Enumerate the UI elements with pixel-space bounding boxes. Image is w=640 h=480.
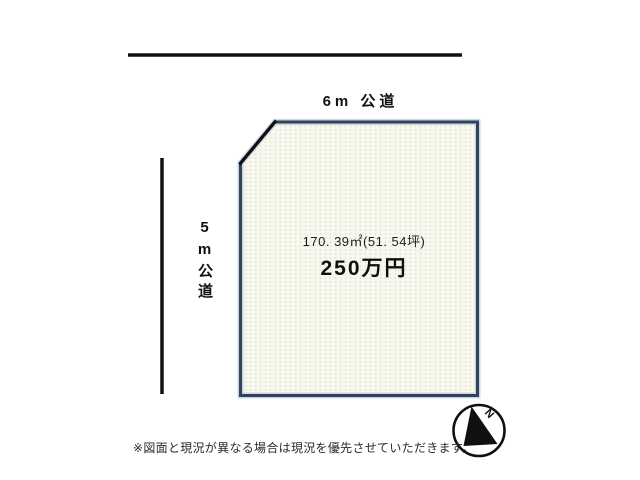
- land-plot-diagram: N 6m 公道 5m公道 170. 39㎡(51. 54坪) 250万円 ※図面…: [0, 0, 640, 480]
- plot-info: 170. 39㎡(51. 54坪) 250万円: [244, 231, 484, 282]
- plot-area-text: 170. 39㎡(51. 54坪): [244, 231, 484, 250]
- plot-price-text: 250万円: [244, 252, 484, 282]
- top-road-label: 6m 公道: [296, 90, 425, 111]
- plot-chamfer-edge: [240, 121, 277, 165]
- left-road-label: 5m公道: [194, 219, 215, 303]
- disclaimer-note: ※図面と現況が異なる場合は現況を優先させていただきます。: [133, 439, 474, 456]
